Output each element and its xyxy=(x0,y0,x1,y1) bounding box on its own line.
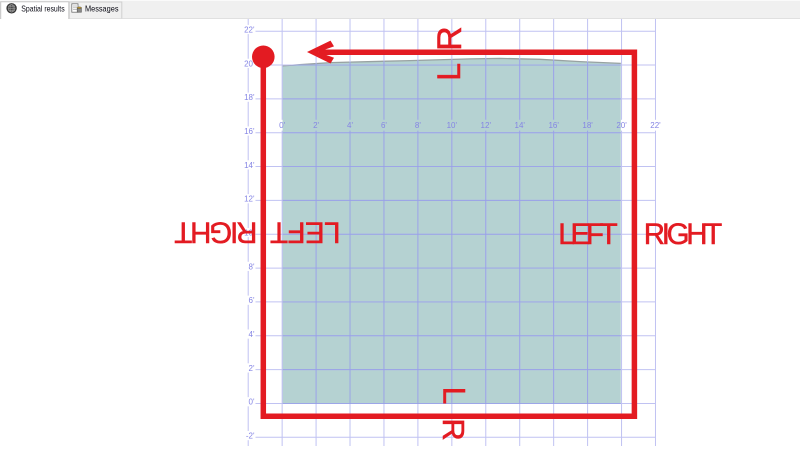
svg-text:Messages: Messages xyxy=(85,5,119,14)
svg-text:RIGHT: RIGHT xyxy=(174,215,257,248)
svg-text:L: L xyxy=(431,63,467,81)
svg-text:8': 8' xyxy=(415,121,421,130)
svg-text:2': 2' xyxy=(313,121,319,130)
svg-text:22': 22' xyxy=(650,121,661,130)
svg-text:22': 22' xyxy=(244,26,255,35)
svg-text:L: L xyxy=(436,387,471,404)
svg-text:Spatial results: Spatial results xyxy=(21,5,64,14)
svg-text:R: R xyxy=(431,26,469,51)
svg-text:18': 18' xyxy=(582,121,593,130)
svg-text:10': 10' xyxy=(447,121,458,130)
svg-text:-2': -2' xyxy=(246,432,255,441)
svg-text:2': 2' xyxy=(249,364,255,373)
svg-text:LEFT: LEFT xyxy=(558,218,617,251)
svg-text:16': 16' xyxy=(244,127,255,136)
svg-text:LEFT: LEFT xyxy=(270,215,341,248)
svg-text:8': 8' xyxy=(249,262,255,271)
svg-text:0': 0' xyxy=(249,398,255,407)
svg-text:14': 14' xyxy=(515,121,526,130)
svg-text:12': 12' xyxy=(244,195,255,204)
svg-text:6': 6' xyxy=(249,296,255,305)
svg-text:18': 18' xyxy=(244,93,255,102)
svg-text:4': 4' xyxy=(347,121,353,130)
svg-text:RIGHT: RIGHT xyxy=(644,218,722,251)
svg-text:16': 16' xyxy=(548,121,559,130)
svg-text:20': 20' xyxy=(616,121,627,130)
svg-text:14': 14' xyxy=(244,161,255,170)
svg-text:6': 6' xyxy=(381,121,387,130)
svg-text:4': 4' xyxy=(249,330,255,339)
svg-text:R: R xyxy=(436,418,471,440)
svg-text:0': 0' xyxy=(279,121,285,130)
svg-text:12': 12' xyxy=(481,121,492,130)
